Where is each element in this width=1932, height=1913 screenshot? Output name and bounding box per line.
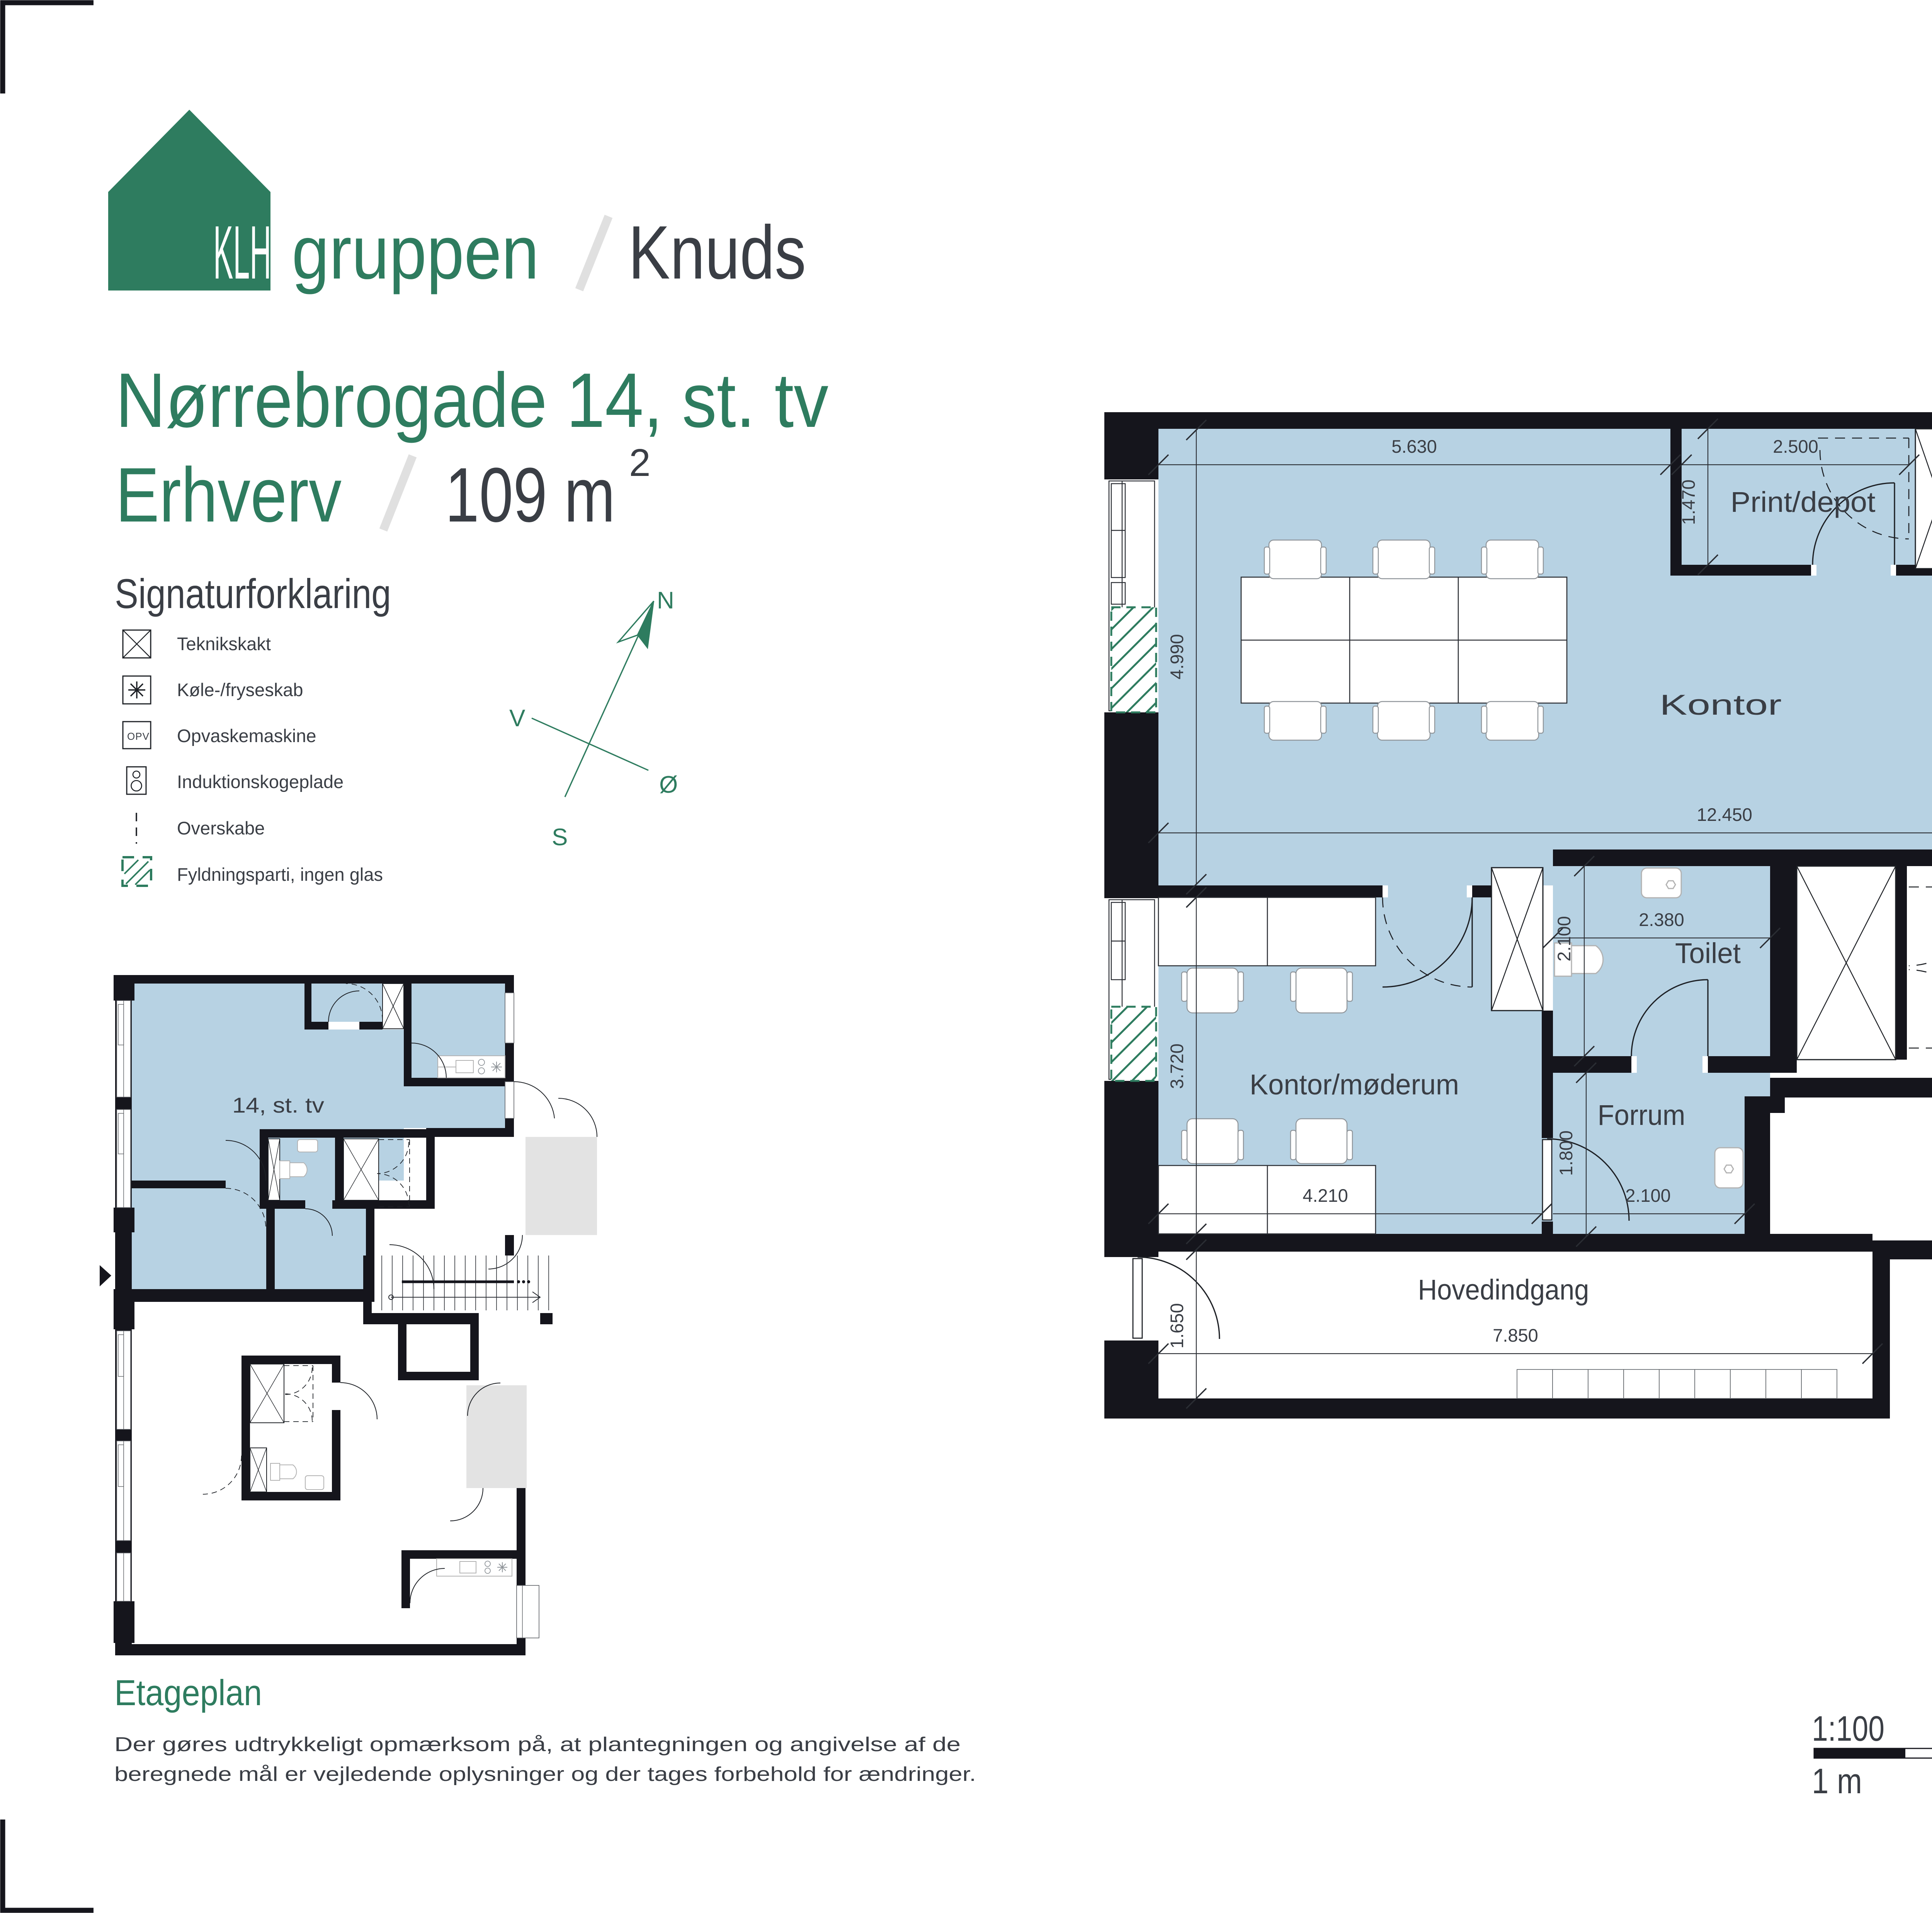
svg-text:Overskabe: Overskabe xyxy=(177,818,265,838)
svg-text:beregnede mål er vejledende op: beregnede mål er vejledende oplysninger … xyxy=(114,1763,976,1786)
svg-text:Køle-/fryseskab: Køle-/fryseskab xyxy=(177,680,303,700)
svg-text:2.100: 2.100 xyxy=(1554,916,1574,962)
svg-text:7.850: 7.850 xyxy=(1493,1325,1538,1346)
svg-text:Nørrebrogade 14, st. tv: Nørrebrogade 14, st. tv xyxy=(116,357,828,443)
svg-text:Toilet: Toilet xyxy=(1675,937,1741,969)
svg-text:1:100: 1:100 xyxy=(1812,1709,1884,1748)
svg-text:Knuds: Knuds xyxy=(628,210,806,295)
svg-text:2.100: 2.100 xyxy=(1625,1185,1671,1206)
svg-text:Erhverv: Erhverv xyxy=(116,452,342,538)
svg-text:Ø: Ø xyxy=(659,771,678,798)
svg-text:Forrum: Forrum xyxy=(1598,1099,1685,1131)
svg-text:Kontor: Kontor xyxy=(1660,689,1782,721)
svg-text:4.210: 4.210 xyxy=(1303,1185,1348,1206)
svg-text:1.650: 1.650 xyxy=(1167,1303,1187,1349)
svg-text:N: N xyxy=(657,587,674,614)
svg-text:12.450: 12.450 xyxy=(1697,804,1752,825)
svg-text:OPV: OPV xyxy=(127,731,150,742)
svg-text:4.990: 4.990 xyxy=(1167,634,1187,680)
svg-text:5.630: 5.630 xyxy=(1391,436,1437,457)
svg-text:14, st. tv: 14, st. tv xyxy=(232,1093,324,1117)
svg-text:2: 2 xyxy=(629,441,651,484)
svg-text:Fyldningsparti, ingen glas: Fyldningsparti, ingen glas xyxy=(177,864,383,885)
svg-text:Print/depot: Print/depot xyxy=(1731,486,1876,518)
svg-text:Hovedindgang: Hovedindgang xyxy=(1418,1274,1589,1306)
svg-text:1.470: 1.470 xyxy=(1678,479,1699,525)
svg-text:Signaturforklaring: Signaturforklaring xyxy=(115,570,391,617)
svg-text:KLH: KLH xyxy=(213,210,271,295)
svg-text:gruppen: gruppen xyxy=(292,210,539,295)
svg-text:Teknikskakt: Teknikskakt xyxy=(177,634,271,654)
svg-text:3.720: 3.720 xyxy=(1167,1043,1187,1089)
svg-text:1.800: 1.800 xyxy=(1556,1130,1576,1176)
svg-text:2.380: 2.380 xyxy=(1639,909,1684,930)
svg-text:1 m: 1 m xyxy=(1812,1762,1862,1801)
svg-text:Der gøres udtrykkeligt opmærks: Der gøres udtrykkeligt opmærksom på, at … xyxy=(114,1733,961,1756)
svg-text:Induktionskogeplade: Induktionskogeplade xyxy=(177,771,344,792)
svg-text:2.500: 2.500 xyxy=(1773,436,1818,457)
svg-text:Kontor/møderum: Kontor/møderum xyxy=(1250,1069,1459,1101)
svg-text:109 m: 109 m xyxy=(445,452,615,538)
svg-text:Etageplan: Etageplan xyxy=(114,1672,262,1713)
svg-text:Opvaskemaskine: Opvaskemaskine xyxy=(177,725,316,746)
svg-text:V: V xyxy=(509,705,526,732)
svg-text:S: S xyxy=(552,824,568,851)
